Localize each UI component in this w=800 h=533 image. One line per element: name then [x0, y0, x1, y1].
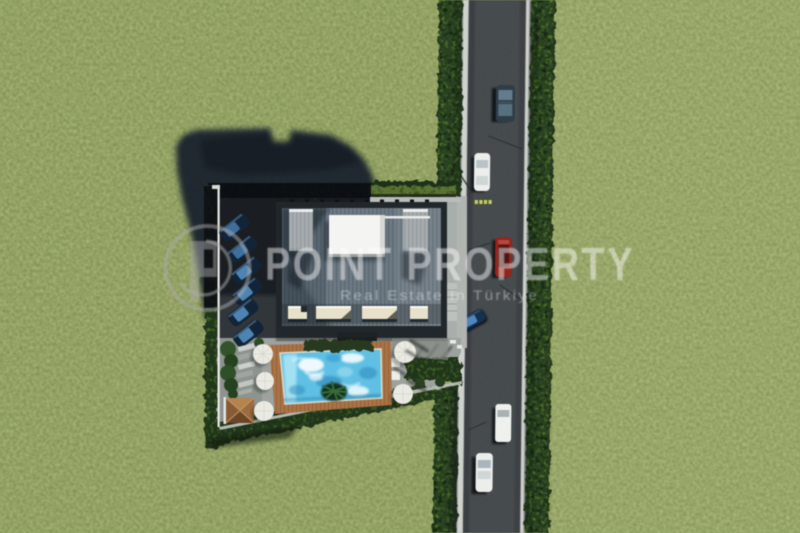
svg-text:POINT PROPERTY: POINT PROPERTY	[265, 238, 635, 290]
svg-text:Real Estate in Türkiye: Real Estate in Türkiye	[340, 287, 539, 303]
